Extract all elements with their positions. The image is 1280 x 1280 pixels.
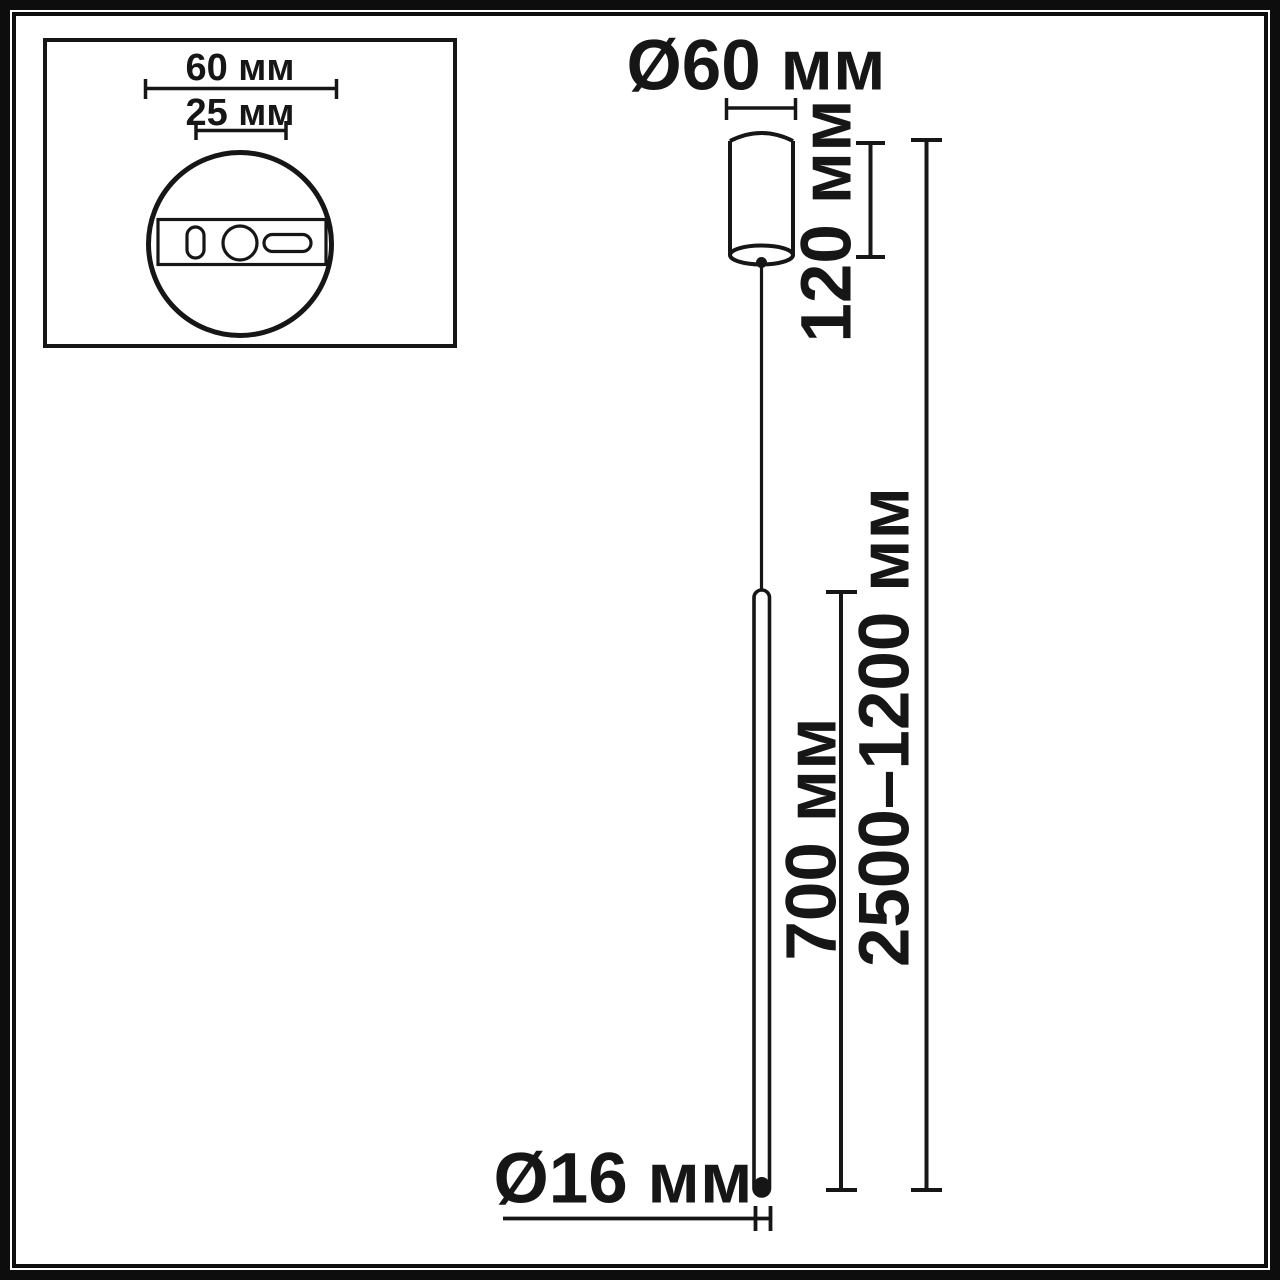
dimension-diagram: 60 мм 25 мм Ø60 мм 120 мм 700 мм 2500–12… (0, 0, 1280, 1280)
mount-width-label: 60 мм (185, 49, 294, 87)
canopy-height-label: 120 мм (792, 99, 863, 342)
bracket-slot-horizontal (264, 235, 311, 252)
cable-gland-dot (756, 257, 767, 268)
bracket-center-hole (223, 226, 257, 260)
diagram-linework (0, 0, 1280, 1280)
tube-lamp-end-cap (754, 1177, 770, 1196)
canopy (730, 133, 793, 265)
mount-hole-spacing-label: 25 мм (185, 94, 294, 132)
suspension-range-label: 2500–1200 мм (850, 487, 921, 967)
canopy-diameter-label: Ø60 мм (627, 31, 886, 102)
tube-lamp (754, 590, 770, 1196)
lamp-length-label: 700 мм (777, 717, 848, 960)
tube-diameter-label: Ø16 мм (494, 1144, 753, 1215)
bracket-slot-vertical (187, 227, 204, 258)
mount-plate-circle (149, 153, 332, 336)
